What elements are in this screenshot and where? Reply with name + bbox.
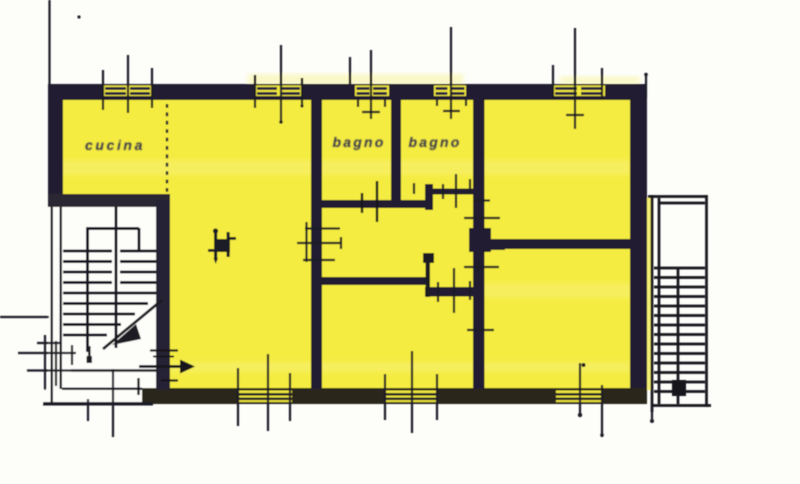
svg-text:cucina: cucina (85, 137, 145, 153)
svg-text:bagno: bagno (409, 134, 462, 150)
svg-text:bagno: bagno (333, 134, 386, 150)
